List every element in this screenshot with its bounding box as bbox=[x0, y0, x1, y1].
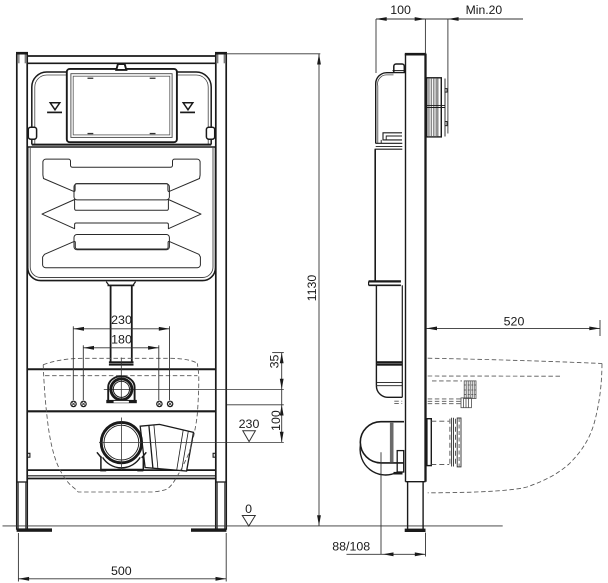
svg-text:1130: 1130 bbox=[305, 275, 319, 302]
svg-text:88/108: 88/108 bbox=[332, 540, 370, 554]
svg-text:500: 500 bbox=[111, 564, 132, 578]
svg-text:Min.20: Min.20 bbox=[466, 3, 503, 17]
svg-text:35: 35 bbox=[268, 355, 282, 369]
svg-text:100: 100 bbox=[269, 410, 283, 431]
svg-text:180: 180 bbox=[111, 332, 132, 346]
svg-text:230: 230 bbox=[111, 313, 132, 327]
svg-text:100: 100 bbox=[390, 3, 411, 17]
svg-text:520: 520 bbox=[504, 314, 525, 328]
svg-text:230: 230 bbox=[239, 417, 260, 431]
svg-text:0: 0 bbox=[245, 502, 252, 516]
